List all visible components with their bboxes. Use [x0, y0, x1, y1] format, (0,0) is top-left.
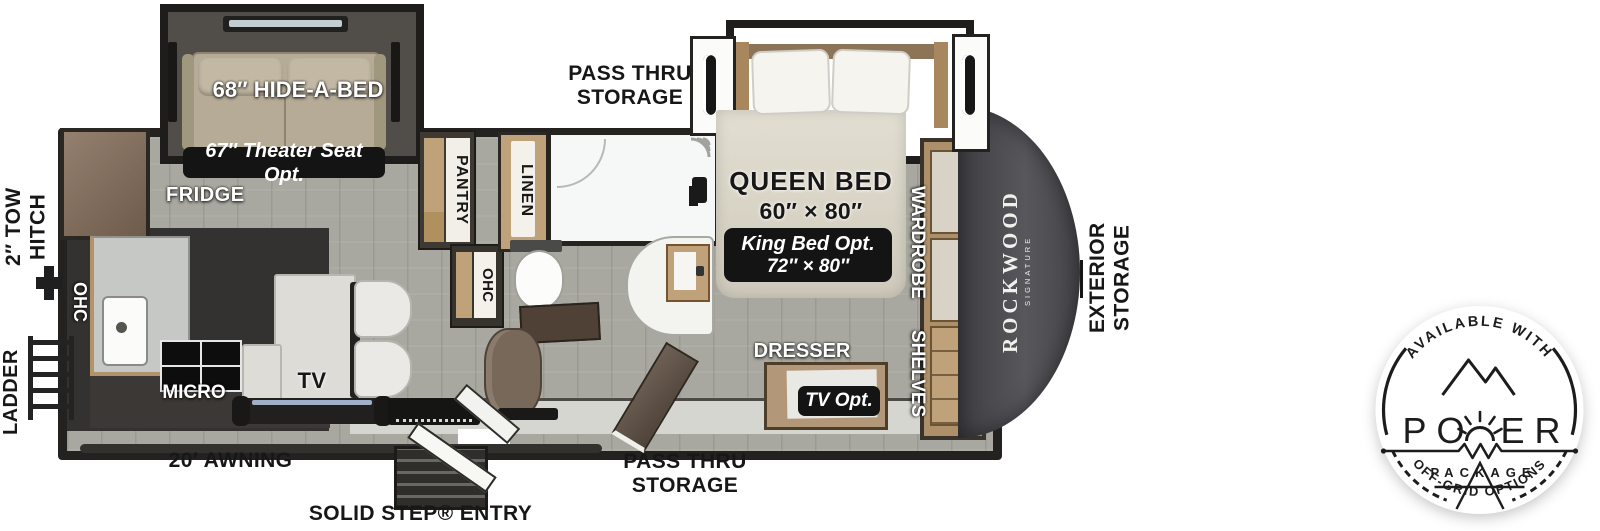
side-window-left-icon	[168, 42, 177, 122]
entry-label: SOLID STEP® ENTRY	[298, 502, 543, 526]
pass-thru-label-top: PASS THRU STORAGE	[548, 62, 712, 111]
floorplan-canvas: 68″ HIDE-A-BED 67″ Theater Seat Opt. FRI…	[0, 0, 1600, 531]
tv-screen	[252, 400, 372, 405]
pillow	[831, 49, 911, 116]
dresser-label: DRESSER	[742, 340, 862, 362]
king-size-label: 72″ × 80″	[724, 256, 892, 279]
exterior-storage-tick	[1080, 260, 1083, 298]
fridge-label: FRIDGE	[166, 184, 266, 206]
tv-mount-cap	[232, 396, 250, 426]
nightstand	[934, 42, 948, 128]
pillow	[751, 49, 831, 116]
ladder-icon	[28, 336, 74, 420]
hide-a-bed-label: 68″ HIDE-A-BED	[208, 78, 388, 103]
power-word-end: ER	[1501, 410, 1571, 451]
toilet-icon	[514, 250, 564, 310]
ladder-label: LADDER	[0, 342, 28, 442]
line-end-dot	[1573, 448, 1578, 453]
dinette-chair	[354, 280, 412, 338]
desk-chair	[484, 328, 542, 418]
pantry-cabinet: PANTRY	[418, 130, 476, 250]
exterior-storage-label: EXTERIOR STORAGE	[1086, 208, 1136, 348]
tv-unit	[244, 398, 380, 424]
step-lights	[396, 419, 472, 422]
pass-thru-label-bottom: PASS THRU STORAGE	[600, 450, 770, 499]
faucet-icon	[116, 322, 127, 333]
compartment-window	[962, 55, 975, 115]
linen-label: LINEN	[511, 145, 535, 235]
line-end-dot	[1381, 448, 1386, 453]
ohc-label-bath: OHC	[474, 254, 496, 316]
ohc-label-kitchen: OHC	[66, 262, 90, 342]
theater-seat-option-label: 67″ Theater Seat Opt.	[183, 139, 385, 187]
dinette-chair	[354, 340, 412, 398]
faucet-icon	[696, 266, 704, 276]
wardrobe-label: WARDROBE	[902, 166, 928, 318]
ohc-cabinet-bath: OHC	[450, 244, 504, 328]
tv-option-badge: TV Opt.	[798, 386, 880, 416]
power-word-start: PO	[1403, 410, 1475, 451]
shower-head-icon	[679, 137, 713, 171]
hitch-icon-cross	[36, 277, 62, 289]
king-bed-option-badge: King Bed Opt. 72″ × 80″	[724, 228, 892, 282]
tv-option-label: TV Opt.	[798, 390, 880, 413]
shower-door-arc	[555, 135, 615, 195]
pass-thru-compartment-right	[952, 34, 990, 152]
fridge-cabinet	[60, 128, 150, 240]
theater-seat-option-badge: 67″ Theater Seat Opt.	[183, 147, 385, 178]
brand-series: SIGNATURE	[1023, 176, 1032, 366]
ohc-wood	[456, 252, 472, 318]
tv-label: TV	[282, 368, 342, 394]
side-window-right-icon	[391, 42, 400, 122]
pantry-wood	[424, 138, 444, 242]
bathroom	[546, 130, 720, 246]
sofa-arm	[182, 54, 194, 150]
pantry-label: PANTRY	[446, 140, 470, 240]
brand-name: ROCKWOOD	[998, 176, 1023, 366]
power-package-badge: AVAILABLE WITH PO ER PACKAGE OFF-GRID OP…	[1362, 300, 1598, 526]
rockwood-logo: ROCKWOOD SIGNATURE	[998, 176, 1050, 366]
shelves-label: SHELVES	[902, 322, 928, 426]
vanity-sink	[666, 244, 710, 302]
awning-label: 20′ AWNING	[128, 449, 333, 473]
micro-label: MICRO	[148, 382, 240, 403]
queen-bed-label: QUEEN BED	[712, 166, 910, 196]
slideout-window	[223, 16, 348, 32]
queen-size-label: 60″ × 80″	[712, 198, 910, 225]
shower-fixture-icon	[692, 177, 707, 203]
window-glass	[229, 20, 342, 27]
king-option-label: King Bed Opt.	[724, 232, 892, 256]
sink-basin	[674, 252, 696, 290]
